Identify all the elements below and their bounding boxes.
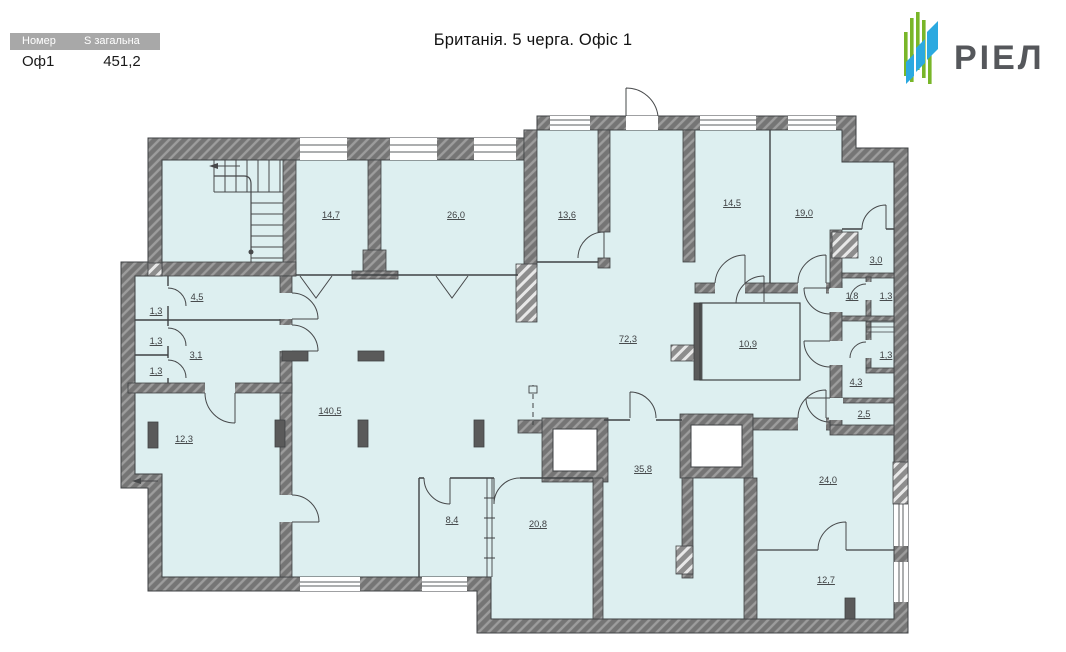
room-area-label: 1,3 [150, 336, 163, 346]
room-area-label: 10,9 [739, 339, 757, 349]
room-area-label: 1,3 [150, 306, 163, 316]
room-area-label: 4,3 [850, 377, 863, 387]
room-area-label: 72,3 [619, 334, 637, 344]
room-area-label: 14,5 [723, 198, 741, 208]
room-area-label: 140,5 [319, 406, 342, 416]
room-area-label: 1,8 [846, 291, 859, 301]
floorplan-drawing: 14,7 26,0 13,6 14,5 19,0 3,0 4,5 1,3 1,3… [0, 0, 1066, 652]
room-area-label: 12,3 [175, 434, 193, 444]
room-area-label: 14,7 [322, 210, 340, 220]
room-area-label: 13,6 [558, 210, 576, 220]
room-area-label: 3,1 [190, 350, 203, 360]
room-area-label: 2,5 [858, 409, 871, 419]
room-area-label: 4,5 [191, 292, 204, 302]
room-area-label: 24,0 [819, 475, 837, 485]
room-area-label: 12,7 [817, 575, 835, 585]
dashed-boundary-marker [529, 386, 537, 393]
room-area-label: 19,0 [795, 208, 813, 218]
room-area-label: 8,4 [446, 515, 459, 525]
room-area-label: 26,0 [447, 210, 465, 220]
room-area-label: 3,0 [870, 255, 883, 265]
room-area-label: 20,8 [529, 519, 547, 529]
room-area-label: 1,3 [150, 366, 163, 376]
interior-floor [135, 130, 894, 619]
floorplan-page: Номер S загальна Оф1 451,2 Британія. 5 ч… [0, 0, 1066, 652]
room-area-label: 35,8 [634, 464, 652, 474]
room-area-label: 1,3 [880, 350, 893, 360]
room-area-label: 1,3 [880, 291, 893, 301]
